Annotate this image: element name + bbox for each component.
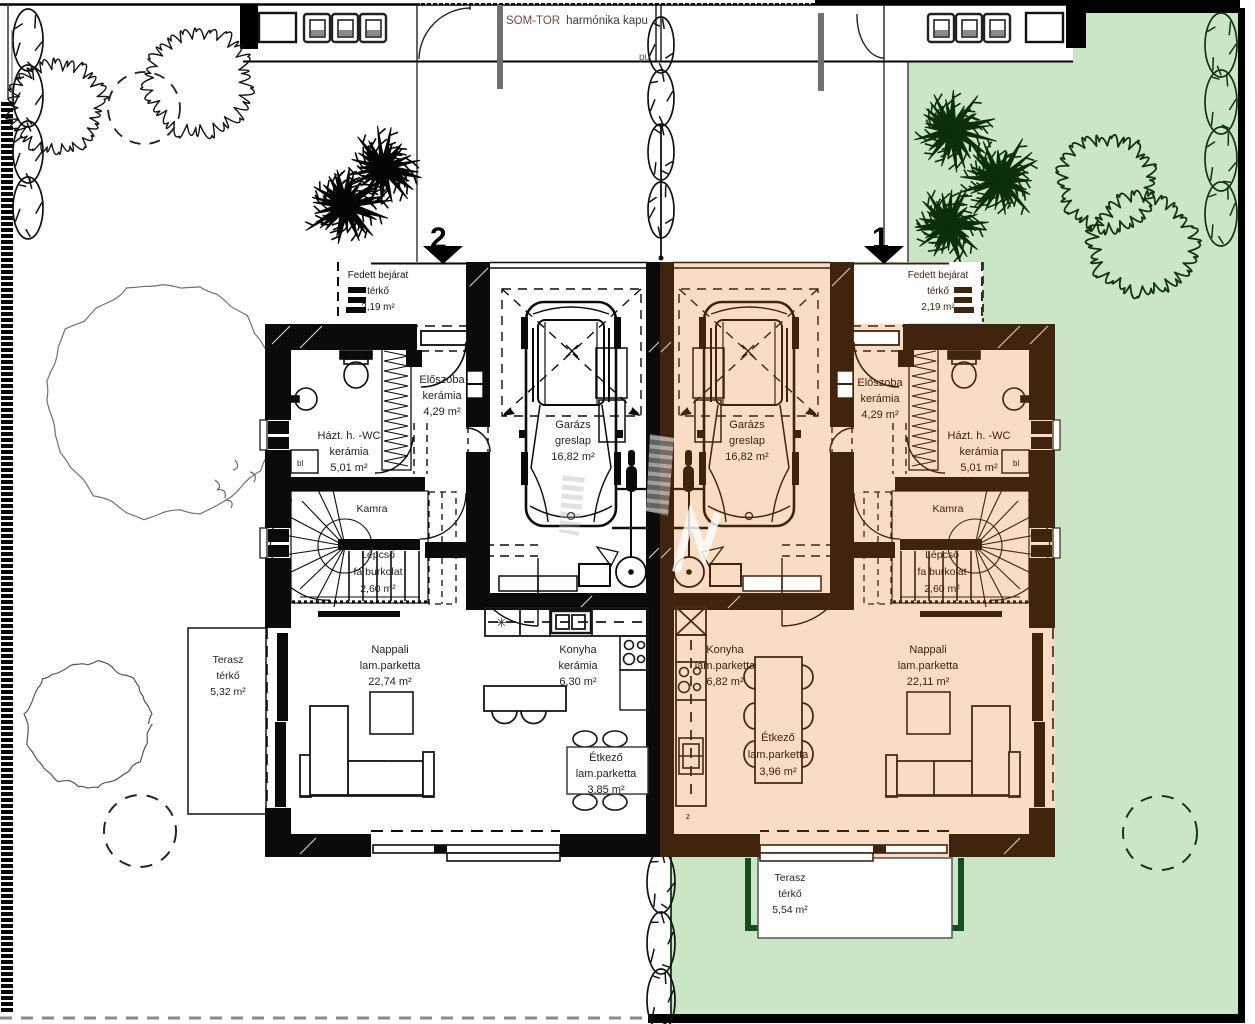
svg-text:Kamra: Kamra <box>933 503 964 515</box>
svg-text:Előszobakerámia4,29 m²: Előszobakerámia4,29 m² <box>419 374 465 418</box>
svg-text:bl: bl <box>1013 459 1019 468</box>
svg-text:z: z <box>686 812 690 821</box>
svg-text:Előszobakerámia4,29 m²: Előszobakerámia4,29 m² <box>857 377 903 421</box>
svg-text:✳: ✳ <box>496 615 507 630</box>
svg-text:Garázsgreslap16,82 m²: Garázsgreslap16,82 m² <box>551 419 595 463</box>
svg-text:bl: bl <box>297 459 303 468</box>
svg-text:Kamra: Kamra <box>357 503 388 515</box>
svg-text:Konyhakerámia6,30 m²: Konyhakerámia6,30 m² <box>558 644 598 688</box>
svg-text:SOM-TORharmónika kapu: SOM-TORharmónika kapu <box>506 15 648 27</box>
svg-text:Garázsgreslap16,82 m²: Garázsgreslap16,82 m² <box>725 419 769 463</box>
